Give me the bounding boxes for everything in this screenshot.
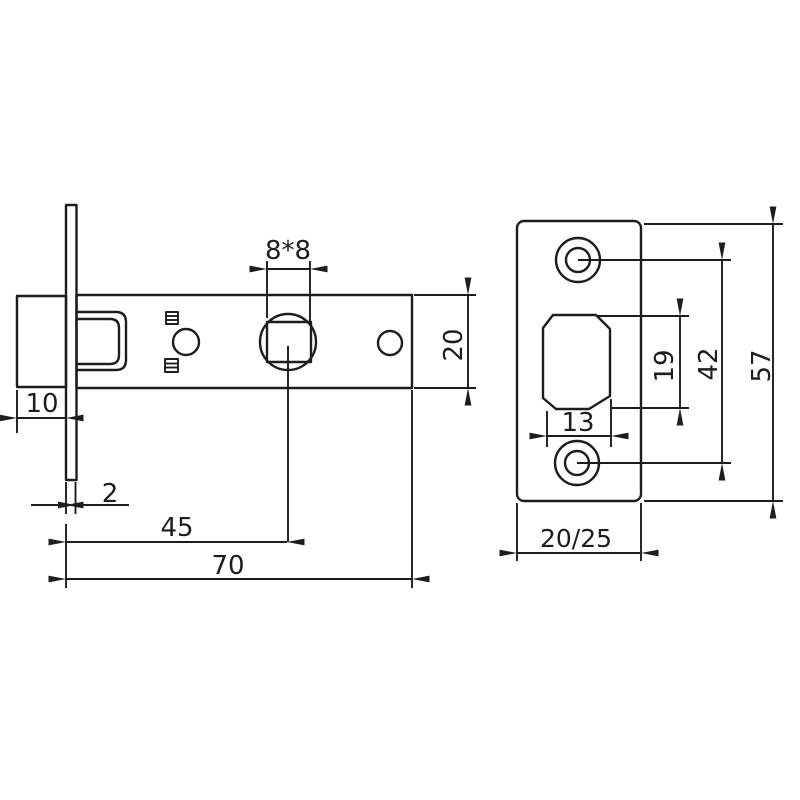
latch-bolt-protrusion [17, 296, 66, 387]
case-cutout-bottom [165, 359, 178, 372]
guide-hole [173, 329, 199, 355]
dim-plate-width: 20/25 [517, 503, 641, 561]
bolt-head-inner-contour [77, 319, 120, 364]
case-cutout-top [166, 312, 178, 324]
dim-faceplate-thickness: 2 [31, 479, 129, 514]
dim-label-bolt-protrusion: 10 [25, 389, 58, 419]
dim-label-spindle-square: 8*8 [265, 236, 311, 266]
case-fixing-hole [378, 331, 402, 355]
dim-label-backset: 45 [160, 513, 193, 543]
latch-body-side-view: 8*8 10 2 45 70 [17, 205, 476, 588]
technical-drawing-canvas: 8*8 10 2 45 70 [0, 0, 800, 800]
dim-label-case-height: 20 [439, 328, 469, 361]
dim-spindle-square: 8*8 [265, 236, 311, 322]
spindle-square-hole [267, 322, 311, 362]
dim-backset: 45 [66, 513, 287, 588]
latch-technical-drawing: 8*8 10 2 45 70 [0, 0, 800, 800]
dim-case-height: 20 [414, 295, 476, 388]
dim-latch-hole-width: 13 [547, 399, 611, 447]
dim-label-latch-hole-width: 13 [561, 408, 594, 438]
faceplate-edge-view [66, 205, 77, 480]
latch-hole-cutout [543, 315, 610, 409]
dim-label-plate-height: 57 [747, 349, 777, 382]
dim-label-case-length: 70 [211, 551, 244, 581]
dim-bolt-protrusion: 10 [17, 389, 66, 433]
dim-label-screw-spacing: 42 [694, 347, 724, 380]
dim-label-plate-width: 20/25 [540, 524, 612, 553]
dim-label-latch-hole-height: 19 [650, 349, 680, 382]
dim-label-faceplate-thickness: 2 [102, 479, 119, 509]
strike-plate-outline [517, 221, 641, 501]
strike-plate-front-view: 19 42 57 13 20/25 [517, 221, 783, 561]
